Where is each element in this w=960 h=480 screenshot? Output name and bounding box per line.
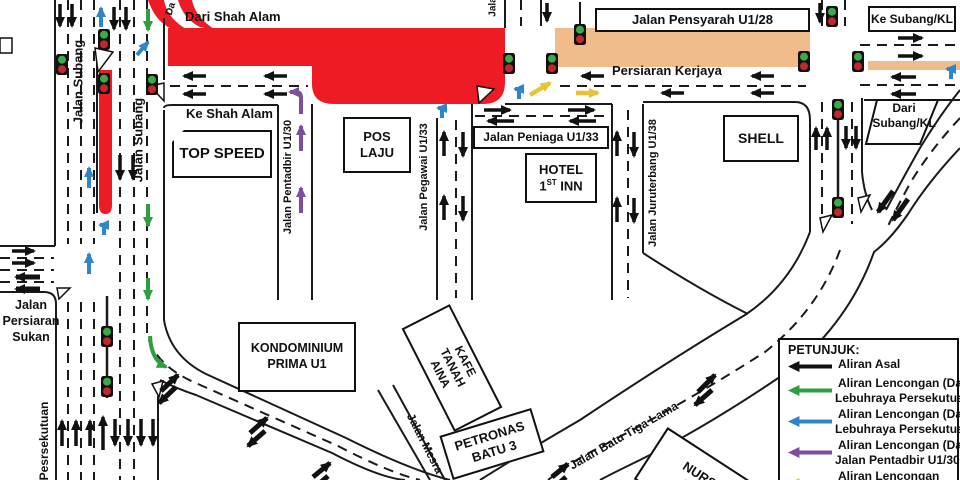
label-jalan-top-fragment: Jala bbox=[488, 0, 499, 17]
legend-item-label: Aliran Lencongan (Dari bbox=[838, 407, 960, 422]
label-persiaran-kerjaya: Persiaran Kerjaya bbox=[612, 64, 722, 78]
legend-arrow-blue bbox=[788, 416, 832, 427]
legend-arrow-purple bbox=[788, 447, 832, 458]
legend-item-label: Aliran Lencongan (Dari bbox=[838, 376, 960, 391]
label-dari-subang-kl: Dari Subang/KL bbox=[866, 101, 942, 131]
legend: PETUNJUK: Aliran Asal Aliran Lencongan (… bbox=[778, 338, 959, 480]
legend-item-label: Lebuhraya Persekutuan) bbox=[835, 391, 960, 406]
legend-title: PETUNJUK: bbox=[788, 344, 860, 358]
roadsign-ke-subang-kl: Ke Subang/KL bbox=[868, 6, 956, 32]
label-ke-shah-alam: Ke Shah Alam bbox=[186, 107, 273, 121]
place-top-speed: TOP SPEED bbox=[172, 130, 272, 178]
legend-item-label: Aliran Asal bbox=[838, 357, 900, 372]
yellow-diversion-arrows bbox=[530, 83, 598, 95]
legend-arrow-green bbox=[788, 385, 832, 396]
traffic-diversion-map: Dari Shah Alam Da Jala Jalan Subang Jala… bbox=[0, 0, 960, 480]
place-pos-laju: POS LAJU bbox=[343, 117, 411, 173]
roadsign-jalan-peniaga: Jalan Peniaga U1/33 bbox=[473, 126, 609, 149]
roadsign-jalan-pensyarah: Jalan Pensyarah U1/28 bbox=[595, 8, 810, 32]
place-shell: SHELL bbox=[723, 115, 799, 162]
label-jalan-subang-east: Jalan Subang bbox=[131, 98, 146, 183]
label-lebuhraya-persekutuan: Pesrsekutuan bbox=[37, 402, 51, 480]
legend-item-label: Aliran Lencongan bbox=[838, 469, 939, 480]
legend-item-label: Lebuhraya Persekutuan) bbox=[835, 422, 960, 437]
place-hotel-1st-inn: HOTEL 1ST INN bbox=[525, 153, 597, 203]
label-jalan-pentadbir: Jalan Pentadbir U1/30 bbox=[282, 120, 294, 234]
legend-arrow-black bbox=[788, 361, 832, 372]
label-jalan-juruterbang: Jalan Juruterbang U1/38 bbox=[647, 119, 659, 247]
label-dari-shah-alam: Dari Shah Alam bbox=[185, 10, 281, 24]
label-jalan-subang-west: Jalan Subang bbox=[71, 40, 86, 125]
place-kondominium-prima-u1: KONDOMINIUM PRIMA U1 bbox=[238, 322, 356, 392]
label-jalan-persiaran-sukan: Jalan Persiaran Sukan bbox=[2, 297, 60, 345]
label-jalan-pegawai: Jalan Pegawai U1/33 bbox=[418, 123, 430, 231]
legend-item-label: Aliran Lencongan (Dari bbox=[838, 438, 960, 453]
legend-item-label: Jalan Pentadbir U1/30) bbox=[835, 453, 960, 468]
